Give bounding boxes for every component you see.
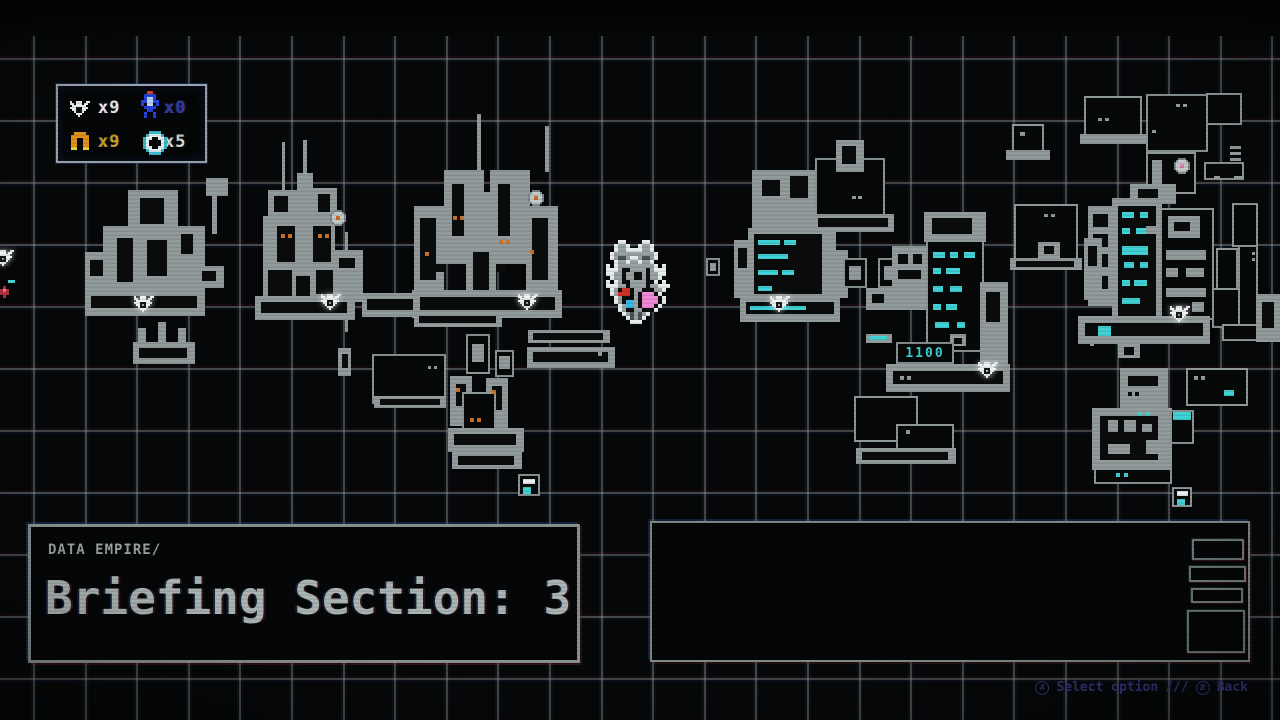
building-block: [533, 352, 608, 362]
building-block: [533, 333, 603, 340]
detail-panel: [650, 521, 1250, 662]
building-block: [762, 180, 780, 196]
building-outline: [1206, 93, 1242, 125]
detail-slot[interactable]: [1187, 610, 1245, 653]
window-light: [477, 418, 481, 422]
window-light: [1124, 262, 1134, 268]
building-block: [986, 292, 1000, 322]
building-block: [140, 198, 164, 224]
building-block: [1183, 104, 1187, 107]
building-block: [1174, 222, 1190, 231]
building-sign: 1100: [896, 342, 954, 364]
briefing-title: Briefing Section: 3: [45, 571, 571, 625]
building-outline: [1084, 96, 1142, 138]
building-block: [954, 338, 962, 344]
building-outline: [1212, 288, 1240, 328]
briefing-kicker: DATA EMPIRE/: [48, 542, 161, 558]
building-block: [710, 263, 716, 271]
window-light: [957, 322, 965, 328]
building-block: [202, 271, 216, 281]
building-block: [1044, 246, 1054, 254]
building-block: [91, 296, 197, 308]
objective-marker: [516, 294, 518, 296]
game-screen: 1100 x9x0x9x5 DATA EMPIRE/ Briefing Sect…: [0, 0, 1280, 720]
building-block: [90, 260, 103, 276]
objective-marker: [768, 296, 770, 298]
building-block: [147, 240, 167, 276]
detail-slot[interactable]: [1191, 588, 1243, 603]
building-block: [117, 238, 133, 282]
building-block: [454, 434, 516, 445]
building-block: [1128, 376, 1158, 386]
building-block: [1234, 176, 1242, 180]
building-block: [268, 270, 292, 296]
building-block: [849, 266, 861, 280]
window-light: [1122, 228, 1130, 234]
building-block: [842, 146, 856, 164]
building-outline: [1238, 245, 1258, 329]
building-block: [1262, 302, 1274, 328]
objective-marker: [132, 296, 134, 298]
building-block: [818, 218, 888, 227]
map-sprite: [0, 286, 3, 289]
window-light: [325, 234, 329, 238]
building-block: [1166, 268, 1178, 277]
building-block: [419, 316, 496, 323]
wing-icon: [68, 101, 70, 103]
building-block: [738, 248, 747, 268]
building-block: [436, 264, 446, 272]
building-block: [428, 366, 431, 369]
pilot-icon: [141, 91, 144, 94]
building-block: [1135, 392, 1139, 396]
window-light: [288, 234, 292, 238]
hint-separator: ///: [1165, 680, 1188, 695]
building-block: [282, 142, 285, 192]
building-block: [898, 254, 908, 264]
window-light: [750, 306, 806, 310]
window-light: [425, 252, 429, 256]
building-outline: [1186, 368, 1248, 406]
window-light: [506, 240, 510, 244]
window-light: [758, 240, 780, 245]
window-light: [946, 268, 960, 274]
building-block: [477, 114, 481, 172]
building-block: [181, 234, 193, 254]
building-block: [333, 250, 363, 296]
building-block: [1252, 258, 1255, 261]
button-b-icon: B: [1196, 681, 1210, 695]
building-block: [496, 264, 506, 272]
building-outline: [1094, 468, 1172, 484]
building-block: [206, 178, 228, 196]
window-light: [1122, 280, 1130, 286]
building-block: [545, 126, 549, 172]
window-light: [460, 216, 464, 220]
player-ship-sprite: [606, 240, 610, 244]
poi-marker: [1174, 158, 1176, 160]
window-light: [964, 252, 975, 258]
building-block: [1252, 252, 1255, 255]
window-light: [1173, 412, 1191, 420]
window-light: [8, 280, 15, 283]
building-block: [932, 218, 972, 234]
building-block: [261, 302, 347, 313]
window-light: [523, 487, 531, 494]
window-light: [492, 390, 496, 394]
building-block: [1166, 288, 1206, 297]
building-block: [900, 376, 904, 380]
building-block: [1108, 444, 1130, 454]
window-light: [318, 234, 322, 238]
window-light: [758, 286, 772, 291]
building-block: [458, 456, 514, 465]
building-block: [318, 194, 330, 212]
building-block: [498, 184, 510, 236]
window-light: [758, 254, 788, 259]
resource-count: x5: [164, 132, 186, 152]
building-block: [1016, 261, 1074, 267]
building-block: [1152, 130, 1156, 133]
building-outline: [1146, 94, 1208, 152]
window-light: [1098, 326, 1111, 336]
building-block: [1192, 302, 1204, 312]
building-block: [434, 366, 437, 369]
window-light: [499, 240, 503, 244]
building-block: [1230, 146, 1241, 149]
button-a-icon: A: [1035, 681, 1049, 695]
building-block: [297, 173, 313, 219]
resource-hud: x9x0x9x5: [56, 84, 207, 163]
building-block: [1124, 420, 1136, 432]
objective-marker: [319, 294, 321, 296]
window-light: [933, 252, 945, 258]
building-block: [1051, 214, 1055, 217]
building-block: [907, 376, 911, 380]
objective-marker: [1168, 306, 1170, 308]
building-block: [1006, 150, 1050, 160]
controls-hint: A Select option /// B Back: [1035, 680, 1248, 695]
window-light: [784, 240, 796, 245]
detail-slot[interactable]: [1189, 566, 1246, 582]
objective-marker: [976, 362, 978, 364]
building-block: [1124, 347, 1134, 355]
building-block: [898, 270, 921, 279]
building-block: [342, 354, 348, 368]
building-outline: [1216, 248, 1238, 290]
building-block: [1230, 152, 1241, 155]
building-block: [1128, 392, 1132, 396]
building-block: [790, 176, 808, 198]
building-block: [1080, 134, 1146, 144]
hint-back: Back: [1217, 680, 1248, 695]
window-light: [935, 322, 949, 328]
window-light: [453, 216, 457, 220]
building-block: [862, 452, 948, 460]
window-light: [950, 286, 962, 292]
resource-count: x9: [98, 98, 120, 118]
building-block: [490, 170, 530, 264]
building-outline: [1012, 124, 1044, 152]
hint-select-option: Select option: [1056, 680, 1158, 695]
building-block: [858, 196, 862, 199]
window-light: [946, 304, 957, 310]
window-light: [1224, 390, 1234, 396]
building-block: [1152, 160, 1162, 186]
window-light: [1177, 499, 1185, 505]
building-block: [1176, 104, 1180, 107]
building-block: [872, 294, 884, 303]
window-light: [950, 252, 958, 258]
building-block: [1230, 158, 1241, 161]
window-light: [782, 270, 794, 275]
resource-count: x0: [164, 98, 186, 118]
building-block: [158, 322, 166, 344]
building-block: [380, 399, 440, 405]
building-block: [1146, 226, 1156, 234]
building-block: [419, 297, 555, 310]
window-light: [870, 336, 887, 340]
resource-count: x9: [98, 132, 120, 152]
building-block: [473, 252, 489, 294]
building-block: [303, 140, 307, 174]
magnet-icon: [68, 132, 71, 135]
poi-marker: [330, 210, 332, 212]
poi-marker: [528, 190, 530, 192]
ring-icon: [143, 131, 146, 134]
window-light: [1140, 212, 1148, 218]
window-light: [1138, 412, 1142, 416]
window-light: [933, 304, 941, 310]
building-block: [1142, 424, 1152, 432]
building-block: [296, 276, 310, 296]
window-light: [933, 286, 943, 292]
window-light: [1140, 262, 1148, 268]
window-light: [456, 388, 460, 392]
building-block: [139, 348, 187, 358]
building-block: [1146, 440, 1160, 454]
building-detail: [1177, 491, 1188, 496]
window-light: [281, 234, 285, 238]
building-block: [1088, 246, 1097, 266]
building-block: [1090, 342, 1094, 346]
window-light: [470, 418, 474, 422]
building-block: [1098, 118, 1102, 121]
window-light: [1116, 473, 1120, 477]
building-detail: [523, 479, 535, 484]
building-block: [1166, 250, 1206, 260]
building-block: [212, 196, 217, 234]
window-light: [1122, 298, 1140, 304]
building-block: [913, 254, 922, 264]
building-block: [1093, 214, 1108, 227]
building-block: [1020, 132, 1025, 136]
window-light: [758, 270, 778, 275]
building-block: [1214, 176, 1220, 180]
window-light: [1146, 412, 1150, 416]
window-light: [1122, 246, 1148, 255]
detail-slot[interactable]: [1192, 539, 1244, 560]
building-block: [274, 196, 288, 212]
building-block: [1108, 420, 1118, 432]
window-light: [1122, 212, 1134, 218]
building-block: [1186, 268, 1204, 277]
building-block: [852, 196, 856, 199]
building-block: [1105, 118, 1109, 121]
window-light: [530, 250, 534, 254]
building-block: [420, 218, 436, 280]
building-block: [367, 299, 413, 310]
building-block: [499, 356, 510, 369]
briefing-panel: DATA EMPIRE/ Briefing Section: 3: [28, 524, 580, 663]
building-block: [339, 258, 355, 268]
building-block: [906, 430, 910, 434]
building-block: [532, 218, 548, 280]
building-block: [1194, 376, 1198, 380]
window-light: [933, 268, 941, 274]
building-outline: [1232, 203, 1258, 247]
building-block: [1044, 214, 1048, 217]
building-block: [472, 344, 484, 362]
building-block: [452, 184, 464, 236]
building-block: [1120, 368, 1168, 410]
building-block: [1201, 376, 1205, 380]
window-light: [1124, 473, 1128, 477]
window-light: [1134, 280, 1147, 286]
building-block: [598, 352, 602, 356]
